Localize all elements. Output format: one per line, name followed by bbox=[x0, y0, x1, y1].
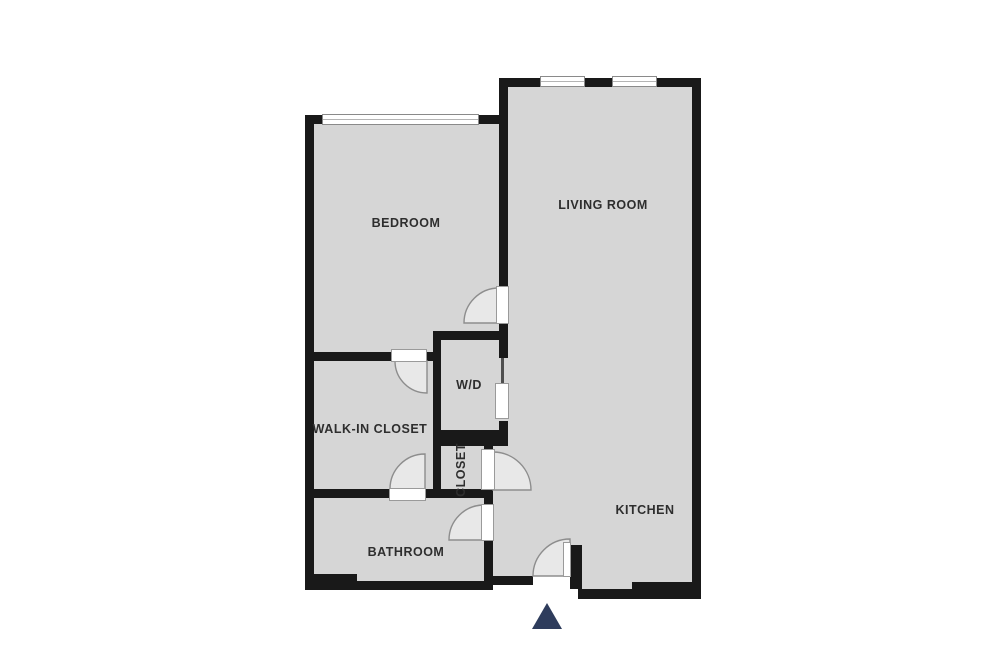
wall bbox=[499, 78, 701, 87]
window bbox=[540, 76, 585, 87]
door-leaf bbox=[496, 286, 509, 324]
wall bbox=[484, 490, 493, 505]
wall bbox=[692, 78, 701, 599]
wall bbox=[305, 352, 392, 361]
bedroom-floor bbox=[310, 120, 503, 356]
door-leaf bbox=[389, 488, 426, 501]
room-label-kitchen: KITCHEN bbox=[615, 503, 674, 517]
sliding-door-track bbox=[501, 358, 504, 384]
room-label-wd: W/D bbox=[456, 378, 482, 392]
wall-entry-stub bbox=[570, 545, 582, 589]
door-leaf bbox=[481, 449, 495, 490]
wall bbox=[499, 421, 508, 430]
wall bbox=[499, 87, 508, 288]
wall bbox=[433, 340, 441, 489]
bathroom-floor bbox=[310, 493, 488, 585]
room-label-bathroom: BATHROOM bbox=[368, 545, 445, 559]
door-leaf bbox=[563, 542, 571, 577]
wall bbox=[493, 576, 533, 585]
window bbox=[612, 76, 657, 87]
sliding-door-leaf bbox=[495, 383, 509, 419]
wall bbox=[499, 323, 508, 358]
entrance-arrow-icon bbox=[532, 603, 562, 629]
wall bbox=[433, 331, 508, 340]
floor-plan: BEDROOM LIVING ROOM W/D WALK-IN CLOSET C… bbox=[0, 0, 1000, 666]
wall-thick-segment bbox=[632, 582, 701, 599]
room-label-walk-in-closet: WALK-IN CLOSET bbox=[313, 422, 428, 436]
wall bbox=[484, 540, 493, 590]
room-label-living-room: LIVING ROOM bbox=[558, 198, 648, 212]
door-leaf bbox=[391, 349, 427, 362]
window bbox=[322, 114, 479, 125]
wall bbox=[433, 430, 508, 446]
wall bbox=[305, 489, 390, 498]
wall bbox=[305, 115, 314, 590]
room-label-closet: CLOSET bbox=[454, 443, 468, 497]
room-label-bedroom: BEDROOM bbox=[372, 216, 441, 230]
door-leaf bbox=[481, 504, 494, 541]
